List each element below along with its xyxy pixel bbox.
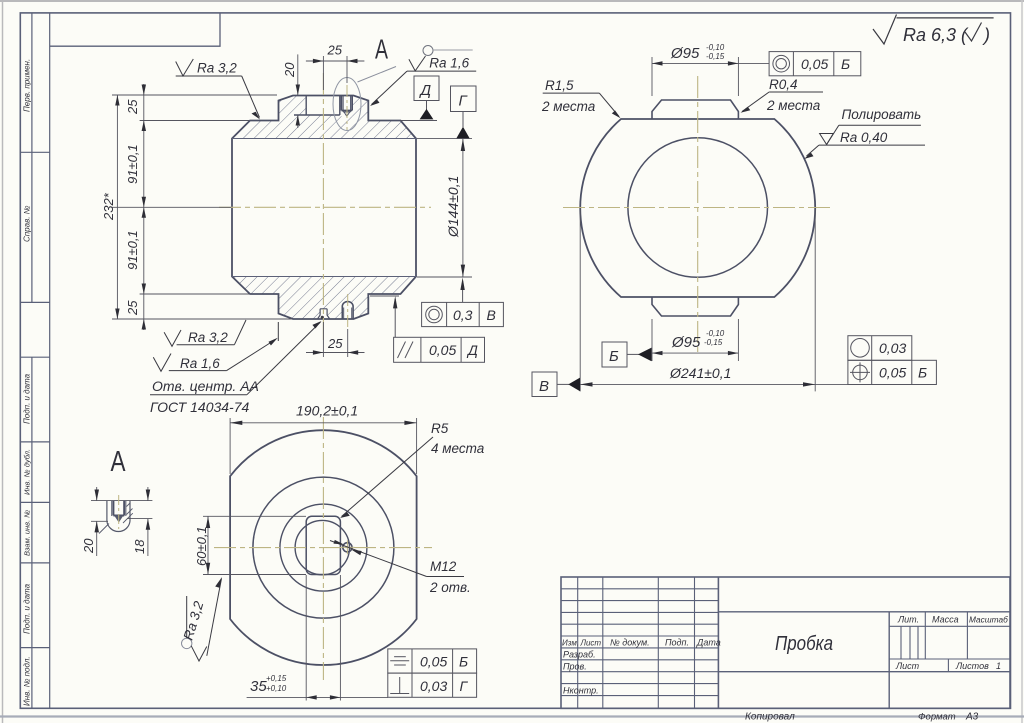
svg-text:20: 20 [282,62,297,78]
svg-text:Взам. инв. №: Взам. инв. № [23,510,32,556]
svg-text:№ докум.: № докум. [610,638,650,648]
svg-text:0,05: 0,05 [429,342,456,358]
svg-text:Формат: Формат [918,712,956,723]
svg-text:Лист: Лист [895,661,920,671]
svg-text:Изм.: Изм. [562,639,579,648]
svg-text:Б: Б [459,654,468,670]
svg-text:Масштаб: Масштаб [969,615,1008,625]
svg-text:): ) [982,25,990,45]
svg-text:25: 25 [125,300,140,316]
svg-text:Б: Б [918,365,927,381]
svg-text:Масса: Масса [932,615,959,625]
svg-text:Ra 3,2: Ra 3,2 [188,330,228,345]
svg-text:Справ. №: Справ. № [23,205,32,242]
svg-text:25: 25 [125,99,140,115]
svg-text:25: 25 [327,43,343,58]
svg-text:Инв. № подл.: Инв. № подл. [23,656,32,706]
svg-text:Д: Д [466,342,478,358]
svg-text:190,2±0,1: 190,2±0,1 [296,403,358,419]
svg-text:1: 1 [996,661,1001,671]
svg-text:Ø144±0,1: Ø144±0,1 [445,176,461,238]
svg-text:0,05: 0,05 [420,654,447,670]
svg-text:4 места: 4 места [431,441,485,456]
svg-text:Листов: Листов [955,661,989,671]
svg-text:Лист: Лист [580,639,602,648]
svg-text:Ra 6,3 (: Ra 6,3 ( [903,25,969,45]
svg-text:20: 20 [81,538,96,554]
svg-text:0,03: 0,03 [879,340,906,356]
svg-text:Ra 0,40: Ra 0,40 [840,130,888,145]
svg-text:35: 35 [250,678,267,695]
svg-text:А3: А3 [965,712,979,723]
svg-text:2 места: 2 места [541,99,596,114]
svg-text:Ra 1,6: Ra 1,6 [429,56,469,71]
svg-text:-0,10: -0,10 [706,329,725,338]
svg-text:Перв. примен.: Перв. примен. [23,59,32,112]
svg-text:Ra 1,6: Ra 1,6 [180,356,220,371]
svg-text:-0,15: -0,15 [704,338,723,347]
svg-text:М12: М12 [430,559,457,574]
svg-text:0,05: 0,05 [801,56,828,72]
svg-text:Б: Б [609,348,619,365]
svg-text:91±0,1: 91±0,1 [125,144,140,184]
svg-text:А: А [375,34,388,65]
svg-text:-0,15: -0,15 [706,52,725,61]
svg-text:ГОСТ 14034-74: ГОСТ 14034-74 [150,399,250,415]
svg-text:Нконтр.: Нконтр. [563,685,599,695]
svg-text:Инв. № дубл.: Инв. № дубл. [23,449,32,495]
svg-text:Копировал: Копировал [745,712,795,723]
svg-text:В: В [487,307,496,323]
svg-text:Лит.: Лит. [897,615,919,625]
svg-text:Ø241±0,1: Ø241±0,1 [669,365,731,381]
svg-text:Разраб.: Разраб. [563,650,596,660]
svg-text:-0,10: -0,10 [706,43,725,52]
svg-text:232*: 232* [101,192,116,221]
svg-text:Ø95: Ø95 [670,45,700,62]
svg-text:В: В [539,378,549,395]
svg-text:R5: R5 [431,421,449,436]
svg-text:0,03: 0,03 [420,678,447,694]
svg-text:+0,10: +0,10 [266,684,287,693]
svg-text:Полировать: Полировать [842,107,922,122]
svg-text:2 отв.: 2 отв. [429,580,471,595]
svg-text:Дата: Дата [696,638,721,648]
svg-text:Подп. и дата: Подп. и дата [23,373,32,424]
svg-text:Б: Б [841,56,850,72]
svg-text:0,3: 0,3 [453,307,473,323]
svg-text:R0,4: R0,4 [769,77,798,92]
svg-text:60±0,1: 60±0,1 [194,526,209,566]
svg-text:Пробка: Пробка [775,632,833,655]
svg-text:R1,5: R1,5 [545,78,574,93]
svg-text:Подп. и дата: Подп. и дата [23,583,32,634]
svg-text:25: 25 [327,336,343,351]
svg-text:Подп.: Подп. [665,638,689,648]
svg-text:2 места: 2 места [766,98,821,113]
svg-text:Д: Д [419,82,432,99]
svg-text:91±0,1: 91±0,1 [125,230,140,270]
svg-text:Ra 3,2: Ra 3,2 [197,61,237,76]
svg-text:18: 18 [132,539,147,554]
svg-text:Ø95: Ø95 [671,334,701,351]
svg-text:А: А [111,446,127,478]
svg-text:+0,15: +0,15 [266,674,287,683]
svg-text:Отв. центр. АА: Отв. центр. АА [152,378,259,394]
svg-text:Пров.: Пров. [563,662,587,672]
svg-text:0,05: 0,05 [879,365,906,381]
